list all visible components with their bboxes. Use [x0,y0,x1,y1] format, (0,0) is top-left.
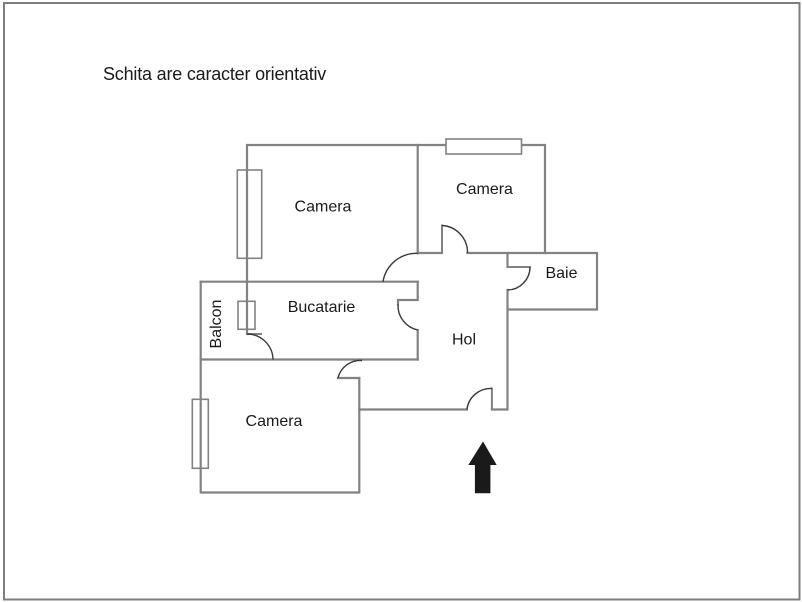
room-label-camera-bottom: Camera [246,413,303,430]
wall-baie-outline [468,253,598,310]
door-arc-camera-top-right [442,226,468,254]
floor-plan-canvas: Schita are caracter orientativ [0,0,802,602]
room-label-camera-top-left: Camera [295,199,352,216]
floor-plan-page: Schita are caracter orientativ [0,0,802,602]
window-camera-top-right [446,139,522,154]
walls [201,145,597,493]
entrance-arrow-icon [468,442,496,494]
door-arc-camera-bottom [338,360,362,378]
room-label-camera-top-right: Camera [456,181,513,198]
wall-bucatarie-right-upper [398,282,418,305]
wall-top-rooms [247,145,545,282]
room-label-hol: Hol [452,332,476,349]
wall-hol-right [492,290,508,410]
room-label-bucatarie: Bucatarie [288,299,356,316]
room-label-balcon: Balcon [208,300,225,349]
room-label-baie: Baie [545,265,577,282]
room-labels: Camera Camera Baie Bucatarie Hol Camera … [208,181,578,430]
window-camera-top-left [237,170,261,258]
door-arc-entrance [467,388,492,409]
door-arc-baie [508,267,531,290]
disclaimer-title: Schita are caracter orientativ [103,64,326,84]
door-arc-balcon [247,334,273,360]
door-arc-bucatarie [398,305,418,331]
page-border [4,3,800,600]
door-arc-camera-top-left [383,253,418,281]
